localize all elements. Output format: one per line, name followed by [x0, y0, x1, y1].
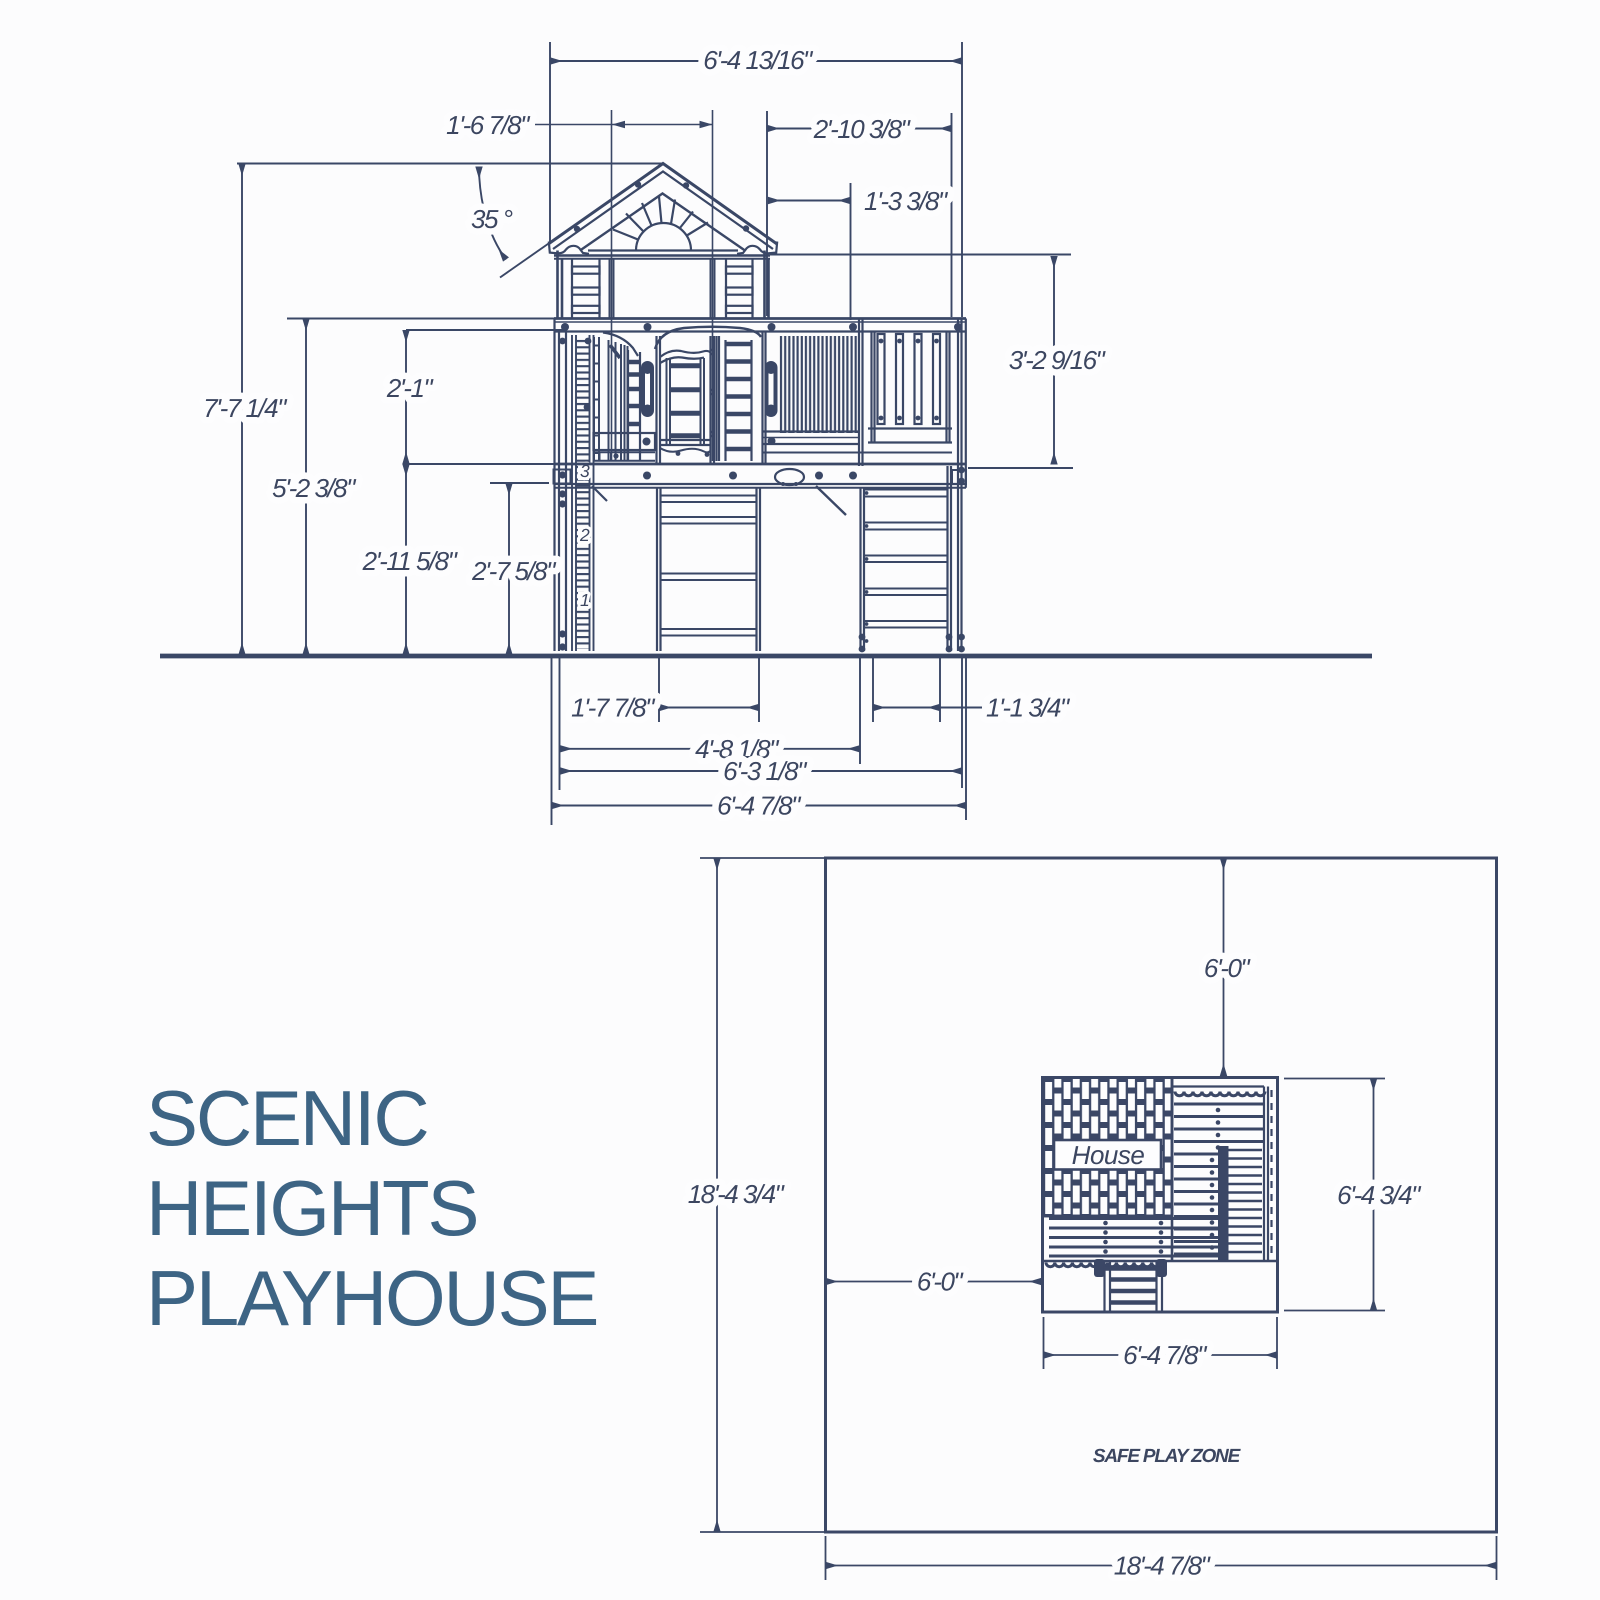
svg-text:18'-4 7/8": 18'-4 7/8": [1114, 1551, 1212, 1581]
svg-text:2'-11 5/8": 2'-11 5/8": [362, 546, 459, 576]
svg-text:6'-3 1/8": 6'-3 1/8": [723, 756, 808, 786]
svg-text:6'-0": 6'-0": [917, 1267, 965, 1297]
svg-text:1'-7 7/8": 1'-7 7/8": [571, 693, 656, 723]
svg-text:5'-2 3/8": 5'-2 3/8": [272, 473, 357, 503]
svg-text:House: House: [1072, 1140, 1145, 1170]
svg-text:2'-10 3/8": 2'-10 3/8": [813, 114, 912, 144]
svg-text:2'-1": 2'-1": [386, 373, 435, 403]
svg-text:6'-4 7/8": 6'-4 7/8": [1123, 1340, 1208, 1370]
svg-text:3'-2 9/16": 3'-2 9/16": [1009, 345, 1107, 375]
svg-text:1'-1 3/4": 1'-1 3/4": [986, 693, 1071, 723]
svg-text:SAFE PLAY ZONE: SAFE PLAY ZONE: [1093, 1446, 1242, 1467]
svg-text:2: 2: [579, 525, 590, 545]
svg-text:6'-4 3/4": 6'-4 3/4": [1337, 1180, 1422, 1210]
svg-text:1: 1: [580, 590, 590, 610]
svg-text:6'-4 13/16": 6'-4 13/16": [703, 45, 814, 75]
svg-text:1'-3 3/8": 1'-3 3/8": [864, 186, 949, 216]
svg-text:35 °: 35 °: [471, 204, 513, 234]
svg-text:7'-7 1/4": 7'-7 1/4": [203, 393, 288, 423]
svg-text:1'-6 7/8": 1'-6 7/8": [446, 110, 531, 140]
svg-text:6'-0": 6'-0": [1204, 953, 1252, 983]
svg-text:2'-7 5/8": 2'-7 5/8": [471, 556, 557, 586]
svg-text:6'-4 7/8": 6'-4 7/8": [717, 791, 802, 821]
svg-text:18'-4 3/4": 18'-4 3/4": [688, 1179, 786, 1209]
